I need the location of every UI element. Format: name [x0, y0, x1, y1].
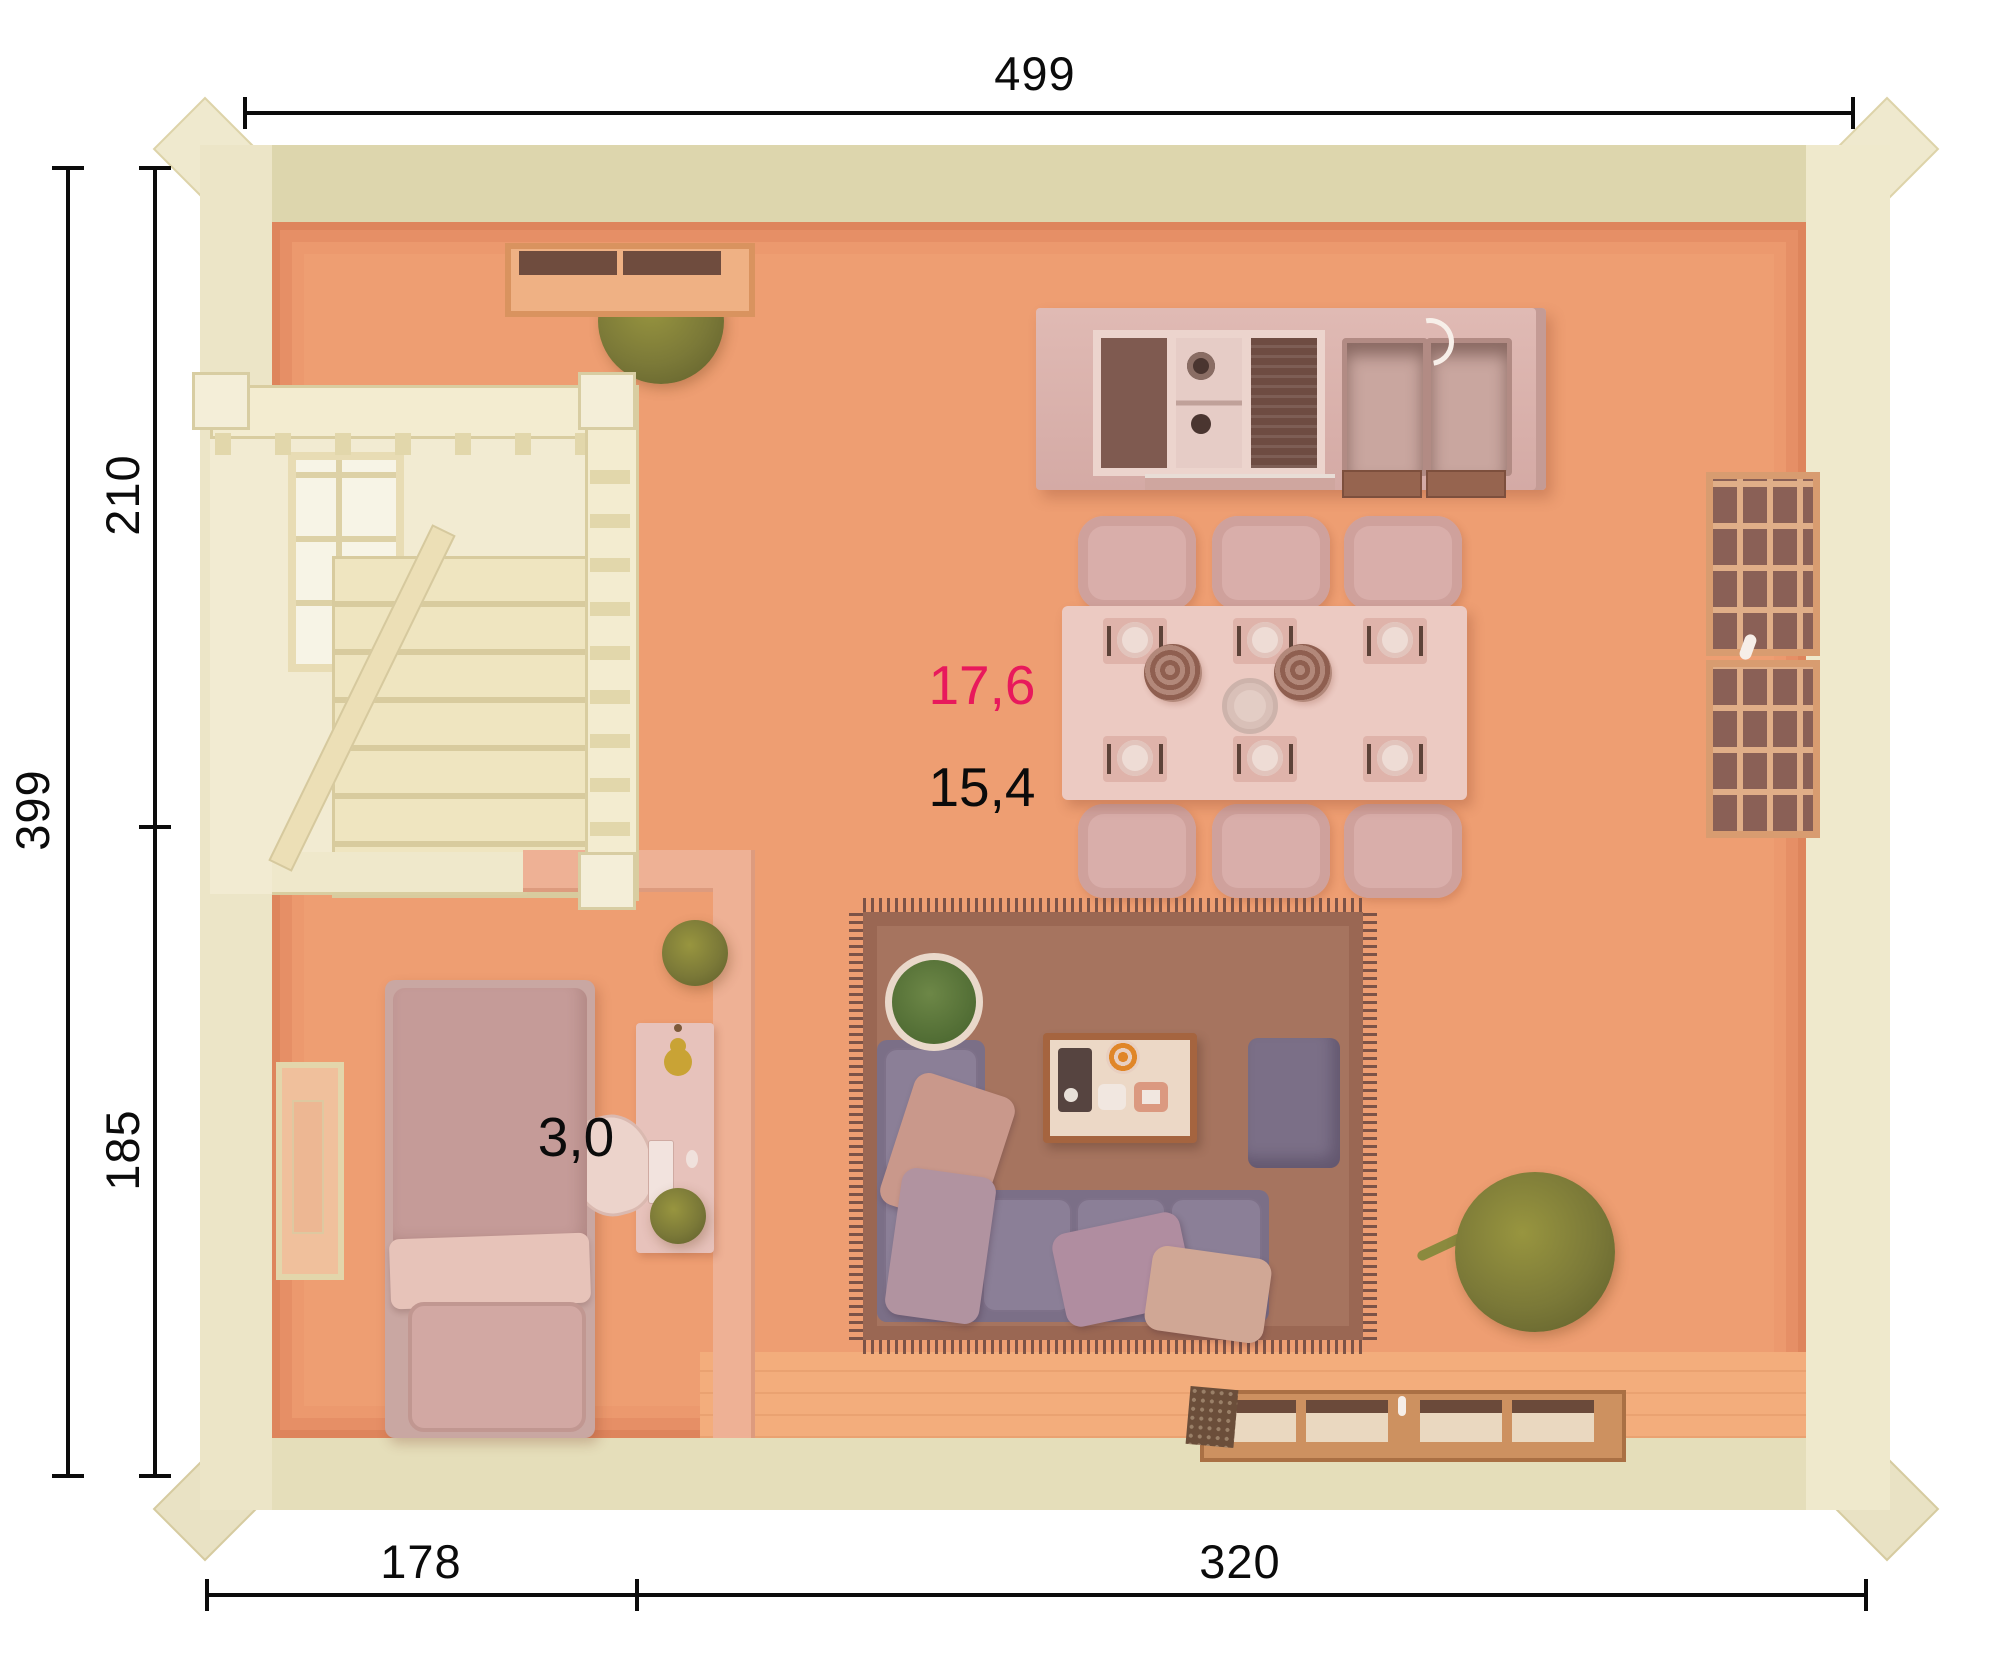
large-plant-bottom-right — [1455, 1172, 1615, 1332]
stair-railing-slats — [590, 440, 630, 880]
dim-tick — [52, 166, 84, 170]
door-pane-2 — [1306, 1400, 1388, 1442]
rug-fringe-bottom — [863, 1338, 1363, 1354]
knife — [1367, 626, 1371, 656]
railing-post-top-left — [192, 372, 250, 430]
bedroom-window-pane — [292, 1100, 324, 1234]
stair-steps — [332, 556, 626, 898]
table-flowers-left — [1144, 644, 1202, 702]
dining-chair-top-1 — [1078, 516, 1196, 610]
table-glass-dish — [1222, 678, 1278, 734]
bed-pillow — [408, 1302, 586, 1432]
dining-chair-bottom-3 — [1344, 804, 1462, 898]
bedroom-plant — [662, 920, 728, 986]
fork — [1289, 744, 1293, 774]
plate — [1377, 740, 1413, 776]
kitchen-drawer-strip — [1145, 474, 1335, 490]
potted-plant-on-rug — [885, 953, 983, 1051]
dim-line-bottom — [207, 1593, 1866, 1597]
top-window-pane-right — [623, 251, 721, 275]
kitchen-cabinet-left — [1342, 470, 1422, 498]
stair-landing-joists — [215, 433, 625, 455]
plate — [1247, 740, 1283, 776]
dim-tick — [52, 1474, 84, 1478]
place-setting — [1233, 736, 1297, 782]
railing-post-top-right — [578, 372, 636, 430]
place-setting — [1363, 736, 1427, 782]
dining-chair-top-2 — [1212, 516, 1330, 610]
fork — [1419, 744, 1423, 774]
top-window-pane-left — [519, 251, 617, 275]
dim-tick — [139, 1474, 171, 1478]
fruit-bowl — [1106, 1040, 1140, 1074]
stair-landing-beam — [210, 385, 636, 439]
plate — [1117, 622, 1153, 658]
plate — [1377, 622, 1413, 658]
doormat — [1186, 1386, 1239, 1448]
snack-plate-large — [1134, 1082, 1168, 1112]
sofa-pillow-pink-right — [1143, 1244, 1274, 1345]
kitchen-grill — [1243, 330, 1325, 476]
right-wall-window-lower — [1706, 660, 1820, 838]
dining-chair-top-3 — [1344, 516, 1462, 610]
dim-label-height-lower: 185 — [99, 1070, 147, 1230]
dim-tick — [139, 825, 171, 829]
dim-tick — [1864, 1579, 1868, 1611]
kitchen-cutting-board — [1093, 330, 1175, 476]
dim-label-height-total: 399 — [9, 730, 57, 890]
place-setting — [1103, 736, 1167, 782]
dim-label-height-upper: 210 — [99, 415, 147, 575]
fork — [1159, 744, 1163, 774]
table-flowers-right — [1274, 644, 1332, 702]
desk-mouse — [686, 1150, 698, 1168]
fork — [1419, 626, 1423, 656]
dim-tick — [635, 1579, 639, 1611]
hob-burner-small — [1191, 414, 1211, 434]
wall-bottom-band — [200, 1438, 1890, 1510]
right-wall-window-upper — [1706, 472, 1820, 656]
coffee-cup — [1064, 1088, 1078, 1102]
dim-tick — [205, 1579, 209, 1611]
plate — [1247, 622, 1283, 658]
dim-tick — [1851, 97, 1855, 129]
dining-chair-bottom-2 — [1212, 804, 1330, 898]
coffee-table-tray — [1058, 1048, 1092, 1112]
dim-label-bottom-left: 178 — [321, 1538, 521, 1585]
ottoman — [1248, 1038, 1340, 1168]
desk-plant — [650, 1188, 706, 1244]
dim-line-left-outer — [66, 168, 70, 1478]
area-label-bedroom: 3,0 — [476, 1110, 676, 1165]
dining-chair-bottom-1 — [1078, 804, 1196, 898]
dim-label-bottom-right: 320 — [1140, 1538, 1340, 1585]
floor-plan-canvas: 499 399 210 185 178 320 17,6 15,4 3,0 — [0, 0, 2000, 1672]
railing-post-bottom-right — [578, 852, 636, 910]
kitchen-hob — [1168, 330, 1250, 476]
dim-label-width-total: 499 — [935, 50, 1135, 97]
knife — [1107, 626, 1111, 656]
bed-blanket — [389, 1233, 591, 1310]
door-pane-4 — [1512, 1400, 1594, 1442]
dim-line-top — [245, 111, 1855, 115]
dim-line-left-inner — [153, 168, 157, 1478]
door-handle — [1398, 1396, 1406, 1416]
guitar — [664, 1048, 692, 1076]
door-pane-3 — [1420, 1400, 1502, 1442]
knife — [1367, 744, 1371, 774]
dim-tick — [243, 97, 247, 129]
area-label-living-black: 15,4 — [882, 760, 1082, 815]
knife — [1107, 744, 1111, 774]
kitchen-cabinet-right — [1426, 470, 1506, 498]
knife — [1237, 626, 1241, 656]
rug-fringe-right — [1361, 912, 1377, 1340]
knife — [1237, 744, 1241, 774]
plate — [1117, 740, 1153, 776]
place-setting — [1363, 618, 1427, 664]
landing-edge-beam — [272, 852, 527, 895]
snack-plate-small — [1098, 1084, 1126, 1110]
wall-top-band — [200, 145, 1890, 222]
area-label-living-red: 17,6 — [882, 658, 1082, 713]
dim-tick — [139, 166, 171, 170]
hob-burner-large — [1187, 352, 1215, 380]
